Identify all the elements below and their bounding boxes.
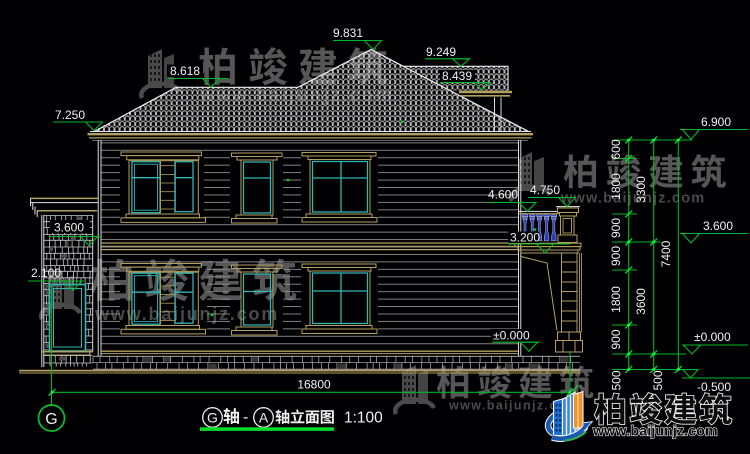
svg-text:3300: 3300 bbox=[634, 176, 648, 203]
svg-text:8.618: 8.618 bbox=[170, 64, 200, 78]
svg-text:600: 600 bbox=[609, 139, 623, 159]
svg-text:2.100: 2.100 bbox=[31, 266, 61, 280]
svg-text:8.439: 8.439 bbox=[442, 69, 472, 83]
svg-text:-0.500: -0.500 bbox=[697, 380, 731, 394]
svg-text:900: 900 bbox=[609, 329, 623, 349]
svg-text:500: 500 bbox=[651, 370, 665, 390]
svg-text:-: - bbox=[243, 409, 248, 426]
svg-text:3.600: 3.600 bbox=[703, 219, 733, 233]
svg-text:9.831: 9.831 bbox=[333, 26, 363, 40]
svg-text:16800: 16800 bbox=[297, 378, 331, 392]
svg-text:4.600: 4.600 bbox=[488, 188, 518, 202]
svg-text:900: 900 bbox=[609, 218, 623, 238]
svg-text:±0.000: ±0.000 bbox=[694, 330, 731, 344]
svg-text:3600: 3600 bbox=[634, 288, 648, 315]
svg-text:G: G bbox=[207, 410, 218, 426]
svg-text:9.249: 9.249 bbox=[426, 45, 456, 59]
svg-text:G: G bbox=[45, 411, 57, 428]
svg-text:4.750: 4.750 bbox=[530, 183, 560, 197]
svg-text:6.900: 6.900 bbox=[701, 115, 731, 129]
svg-text:3.600: 3.600 bbox=[54, 221, 84, 235]
svg-text:3.200: 3.200 bbox=[510, 231, 540, 245]
svg-text:www.baijunjz.com: www.baijunjz.com bbox=[560, 191, 705, 207]
svg-text:1800: 1800 bbox=[609, 173, 623, 200]
svg-text:7400: 7400 bbox=[659, 240, 673, 267]
svg-text:±0.000: ±0.000 bbox=[493, 329, 530, 343]
svg-text:7.250: 7.250 bbox=[55, 108, 85, 122]
svg-text:A: A bbox=[259, 410, 269, 426]
svg-text:500: 500 bbox=[610, 370, 624, 390]
svg-text:1:100: 1:100 bbox=[344, 410, 383, 427]
svg-text:1800: 1800 bbox=[609, 286, 623, 313]
svg-text:900: 900 bbox=[609, 246, 623, 266]
